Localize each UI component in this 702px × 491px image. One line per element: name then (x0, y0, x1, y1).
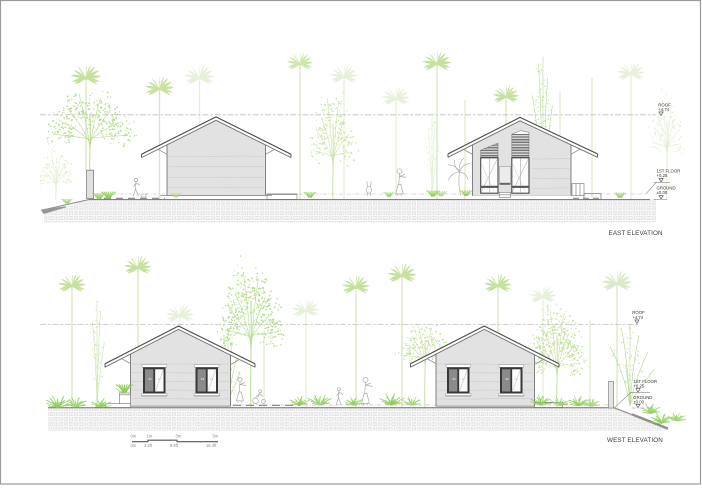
svg-text:+0.25: +0.25 (633, 384, 644, 389)
svg-text:+4.74: +4.74 (658, 107, 669, 112)
svg-text:0m: 0m (131, 433, 137, 438)
svg-text:EAST ELEVATION: EAST ELEVATION (609, 230, 664, 237)
svg-text:±0.00: ±0.00 (657, 190, 668, 195)
svg-text:9.8ft: 9.8ft (170, 443, 179, 448)
svg-text:1m: 1m (147, 433, 153, 438)
svg-text:5m: 5m (213, 433, 219, 438)
svg-text:3m: 3m (176, 433, 182, 438)
svg-text:3.3ft: 3.3ft (144, 443, 153, 448)
svg-text:+4.74: +4.74 (632, 315, 643, 320)
svg-text:16.4ft: 16.4ft (206, 443, 217, 448)
svg-text:+0.25: +0.25 (657, 173, 668, 178)
svg-text:0m: 0m (131, 443, 137, 448)
svg-text:WEST ELEVATION: WEST ELEVATION (607, 437, 663, 444)
svg-text:±0.00: ±0.00 (633, 399, 644, 404)
